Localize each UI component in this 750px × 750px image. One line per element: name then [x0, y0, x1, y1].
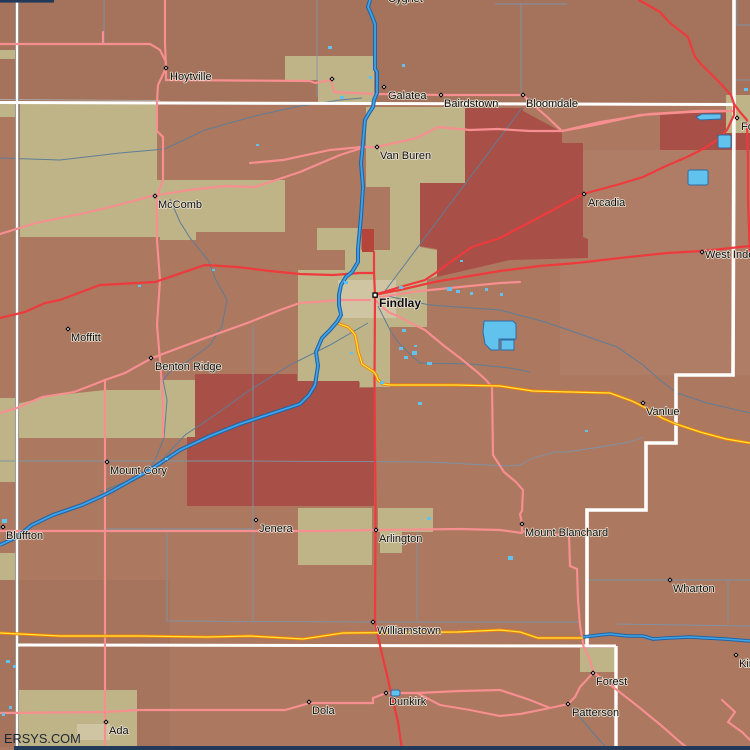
svg-text:Hoytville: Hoytville	[170, 71, 212, 83]
svg-text:Van Buren: Van Buren	[380, 150, 431, 162]
svg-text:Galatea: Galatea	[388, 90, 427, 102]
svg-text:West Inde: West Inde	[705, 249, 750, 261]
svg-text:Bluffton: Bluffton	[6, 530, 43, 542]
svg-text:Kir: Kir	[739, 658, 750, 670]
svg-text:Arcadia: Arcadia	[588, 197, 626, 209]
svg-text:Bloomdale: Bloomdale	[526, 98, 578, 110]
svg-text:Benton Ridge: Benton Ridge	[155, 361, 222, 373]
svg-text:Arlington: Arlington	[379, 533, 422, 545]
svg-text:Cygnet: Cygnet	[388, 0, 423, 5]
svg-text:Bairdstown: Bairdstown	[444, 98, 498, 110]
svg-text:McComb: McComb	[158, 199, 202, 211]
svg-text:Mount Blanchard: Mount Blanchard	[525, 527, 608, 539]
svg-text:Dola: Dola	[312, 705, 336, 717]
svg-text:Moffitt: Moffitt	[71, 332, 101, 344]
svg-text:Jenera: Jenera	[259, 523, 294, 535]
svg-text:Mount Cory: Mount Cory	[110, 465, 167, 477]
svg-text:Findlay: Findlay	[379, 296, 421, 310]
svg-text:Forest: Forest	[596, 676, 627, 688]
svg-text:Williamstown: Williamstown	[377, 625, 441, 637]
svg-text:Ada: Ada	[109, 725, 129, 737]
svg-text:Vanlue: Vanlue	[646, 406, 679, 418]
svg-text:ERSYS.COM: ERSYS.COM	[4, 731, 81, 746]
svg-text:Wharton: Wharton	[673, 583, 715, 595]
svg-text:Patterson: Patterson	[572, 707, 619, 719]
svg-text:Fo: Fo	[741, 121, 750, 133]
svg-text:Dunkirk: Dunkirk	[389, 696, 427, 708]
